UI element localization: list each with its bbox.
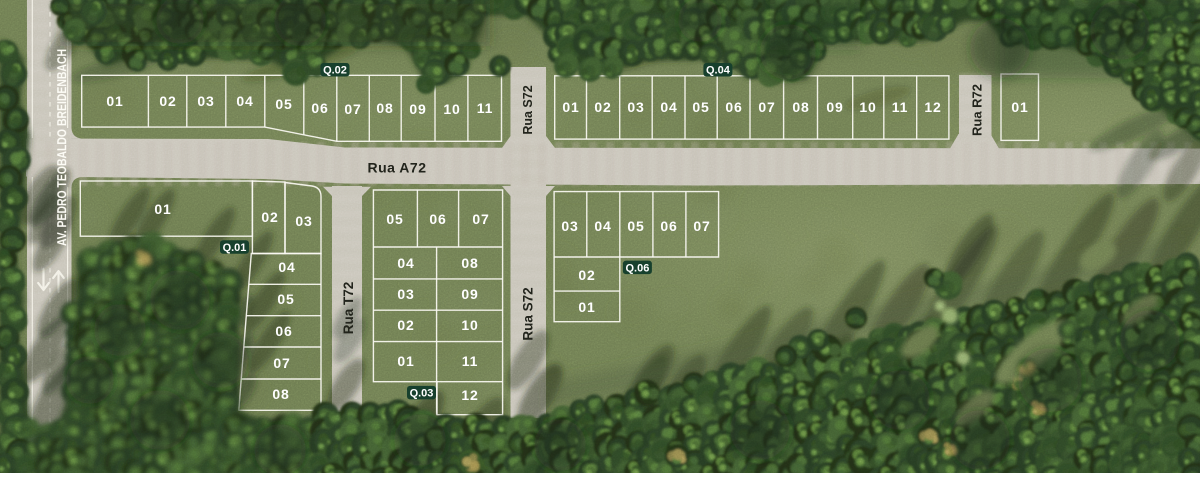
svg-text:Rua R72: Rua R72 <box>970 84 985 136</box>
svg-text:Rua T72: Rua T72 <box>341 282 356 335</box>
svg-text:Q.04: Q.04 <box>706 65 731 77</box>
svg-text:Q.01: Q.01 <box>223 242 247 254</box>
svg-text:Rua S72: Rua S72 <box>521 85 535 134</box>
svg-text:Rua A72: Rua A72 <box>367 160 426 176</box>
svg-text:Q.02: Q.02 <box>323 65 347 77</box>
svg-text:Q.06: Q.06 <box>625 262 649 274</box>
svg-text:AV. PEDRO TEOBALDO BREIDENBACH: AV. PEDRO TEOBALDO BREIDENBACH <box>54 49 69 246</box>
svg-text:Q.03: Q.03 <box>410 388 434 400</box>
svg-text:Rua S72: Rua S72 <box>521 287 536 340</box>
